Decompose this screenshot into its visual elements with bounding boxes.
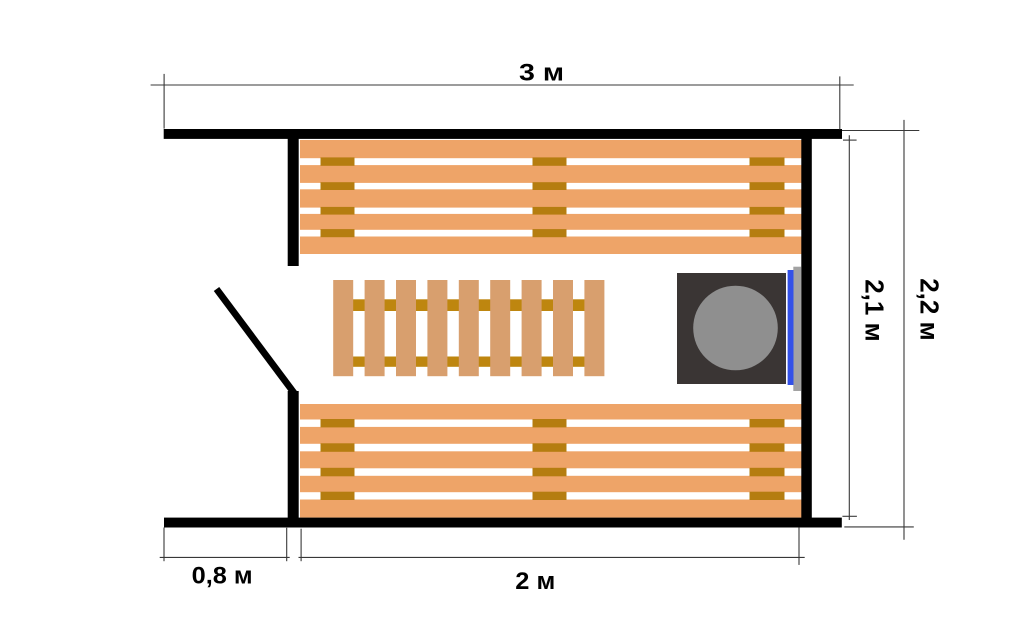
svg-text:0,8 м: 0,8 м [192, 563, 253, 590]
svg-text:2,1 м: 2,1 м [860, 279, 890, 342]
svg-text:2,2 м: 2,2 м [915, 278, 945, 341]
svg-text:3 м: 3 м [519, 59, 564, 86]
svg-text:2 м: 2 м [515, 568, 555, 595]
